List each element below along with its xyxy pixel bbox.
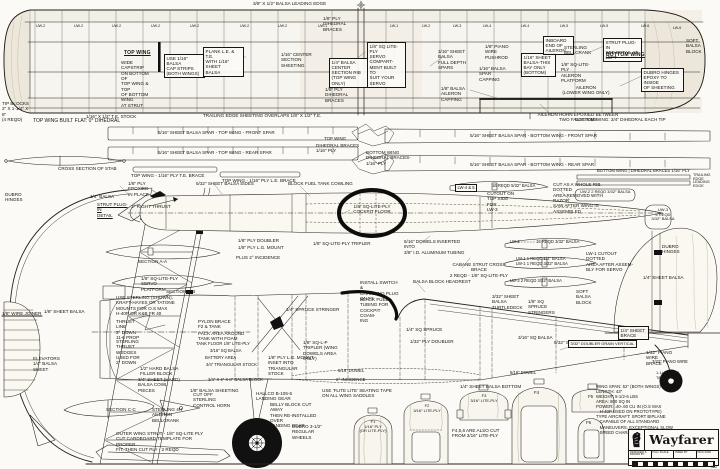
annotation-label: 1-1/4″ REQD TAIL WHEEL <box>656 371 684 380</box>
annotation-label: THRUST LINE 2° DOWN 11-6 PROP <box>116 319 146 340</box>
annotation-label: CUT AS A WHOLE RIB. DOTTED AREA REMOVED … <box>553 182 619 214</box>
annotation-label: SECTION C-C <box>106 407 136 412</box>
annotation-label: BLACK FUEL TUBING FOR COCKPIT COAM- ING <box>360 297 390 324</box>
annotation-label: 3/32″ PIANO WIRE <box>652 360 688 365</box>
annotation-label: PLANK L.E. & T.E. WITH 1/16″ SHEET BALSA <box>203 47 244 77</box>
annotation-label: 1/2″ HARD BALSA FILLER BLOCK <box>140 366 180 377</box>
annotation-label: SECTION A-A <box>138 259 167 264</box>
annotation-label: AILERON (LOWER WING ONLY) <box>556 85 616 96</box>
annotation-label: TOP WING BUILT FLAT: 0° DIHEDRAL <box>33 119 120 125</box>
annotation-label: CABANE STRUT CROSS BRACE 2 REQD - 1/8″ S… <box>446 262 512 278</box>
annotation-label: 3/4″ X 4″ X 8″ BALSA BLOCK <box>208 378 263 383</box>
annotation-label: UW-3 4 REQD 3/32″ BALSA <box>650 208 676 222</box>
annotation-label: 1/8″ PLY L.G. MOUNT <box>238 245 284 250</box>
annotation-label: WIDE CAPSTRIP ON BOTTOM OF TOP WING & TO… <box>121 60 155 108</box>
annotation-label: HALLCO B-105-5 LANDING GEAR <box>256 391 292 402</box>
annotation-label: UW-2 <box>36 24 45 28</box>
annotation-label: 5/16″ DOWELS INSERTED INTO 3/8″ I.D. ALU… <box>404 239 468 255</box>
annotation-label: 1/16″ SHEET BALSA-THIS BAY ONLY (BOTTOM) <box>521 53 556 77</box>
annotation-label: CUT OFF STERLING CONTROL HORN <box>193 392 233 408</box>
annotation-label: 16 REQD 5/32″ BALSA <box>492 184 535 189</box>
annotation-label: UW-2 <box>278 24 287 28</box>
annotation-label: 3/16″ SQ BALSA <box>518 335 553 340</box>
annotation-label: OUTER WING STRUT - 1/8″ SQ-LITE PLY CUT … <box>116 431 208 452</box>
title-block-cells: DESIGNED & DRAWN BYFULL SCALEINKED BYDIC… <box>629 451 718 459</box>
annotation-label: 1/8″ PLY DIHEDRAL BRACES <box>323 16 361 32</box>
annotation-label: UW-1 <box>318 24 327 28</box>
annotation-label: PYLON BRACE F2 & TANK <box>198 319 232 330</box>
annotation-label: 5/16″ SHEET BALSA SPAR - BOTTOM WING - R… <box>470 162 594 167</box>
annotation-label: 1/8″ PIANO WIRE PUSHROD <box>485 44 517 60</box>
annotation-label: LW-1 1 REQD 1/4″ BALSA LW-1 1 REQD 3/32″… <box>516 257 568 267</box>
annotation-label: 3/16″ SHEET BALSA FULL DEPTH SPARS <box>438 49 476 70</box>
annotation-label: 3° RIGHT THRUST <box>131 204 171 209</box>
annotation-label: BOTTOM WING: 3/4″ DIHEDRAL EACH TIP <box>575 117 666 122</box>
annotation-label: BLOCK FUEL TANK COWLING <box>288 181 353 186</box>
annotation-label: F3 3/16″ LITE-PLY <box>464 394 504 403</box>
annotation-label: LW-1 CUTOUT DOTTED AREA AFTER ASSEM- BLY… <box>586 251 636 272</box>
annotation-label: 3/4″ SHEET (HARD) BALSA COWL PIECES <box>138 377 184 393</box>
annotation-label: DUBRO HINGES <box>662 244 684 255</box>
annotation-label: DUBRO HINGES <box>5 192 27 203</box>
annotation-label: 1/4″ SHEET BRACE <box>618 326 649 340</box>
annotation-label: USE STERLING (SHOWN), KRAFT-HAYES OR TAT… <box>116 295 176 316</box>
annotation-label: UW-2 <box>151 24 160 28</box>
annotation-label: 5/16″ SHEET BALSA SPAR - TOP WING - REAR… <box>158 150 272 155</box>
title-block-cell: DICK KIDD <box>697 451 719 458</box>
annotation-label: ELEVATORS 1/4″ BALSA SHEET <box>33 356 61 372</box>
annotation-label: DUBRO HINGES EPOXY TO INSIDE OF SHEETING <box>641 68 684 92</box>
annotation-label: TIP BLOCKS 2″ X 1-1/4″ X 8″ (4 REQD) <box>2 101 32 122</box>
annotation-label: 3/32″ DOUBLER GRAIN VERTICAL <box>568 340 637 348</box>
annotation-label: 5/16″ DOWEL <box>510 371 536 376</box>
annotation-label: TANK FLOOR 1/8″ LITE-PLY <box>196 342 250 347</box>
annotation-label: LW-6 <box>673 26 681 30</box>
annotation-label: 1/4″ SHEET BALSA BOTTOM <box>460 384 521 389</box>
annotation-label: 5/32″ SHEET BALSA SIDES <box>196 181 254 186</box>
annotation-label: LW-3 2 REQD 3/32″ BALSA <box>510 279 562 284</box>
plan-number: 462 <box>711 465 717 469</box>
annotation-label: 1/8″ SQ-LITE-PLY TRIPLER <box>313 241 371 246</box>
annotation-label: F5 <box>588 394 593 399</box>
annotation-label: LW-4 <box>483 24 491 28</box>
annotation-label: TOP WING <box>124 51 151 57</box>
spec-block: WING SPAN: 52″ (BOTH WINGS)LENGTH: 43″WE… <box>596 384 718 435</box>
annotation-label: 1/8″ PLY DIHEDRAL BRACES <box>325 87 363 103</box>
annotation-label: BOTTOM WING <box>606 53 645 59</box>
annotation-label: UW-2 <box>190 24 199 28</box>
annotation-label: DIHEDRAL BRACES 1/16″ PLY <box>316 143 360 154</box>
annotation-label: LW-5 <box>600 24 608 28</box>
annotation-label: 5/16″ DOWEL <box>338 369 364 374</box>
annotation-label: SOFT BALSA BLOCK <box>686 38 710 54</box>
annotation-label: F6 <box>586 420 591 425</box>
annotation-label: 1/8″ SQ LITE-PLY SERVO COMPART- MENT BUI… <box>367 42 406 88</box>
annotation-label: LW-2 <box>510 240 520 245</box>
annotation-label: USE 1/16″ BALSA CAP STRIPS (BOTH WINGS) <box>164 54 205 78</box>
annotation-label: BOTTOM WING DIHEDRAL BRACES- 1/16″ PLY <box>366 150 418 166</box>
annotation-label: CROSS SECTION OF STAB <box>58 166 117 171</box>
annotation-label: 3/8″ X 1/2″ BALSA LEADING EDGE <box>253 1 326 6</box>
annotation-label: 1/8″ SQ-LITE-PLY COCKPIT FLOOR <box>352 204 392 215</box>
annotation-label: 16 REQD 3/32″ BALSA <box>536 240 579 245</box>
annotation-label: 1/8″ SQ SPRUCE STRINGERS <box>528 299 564 315</box>
annotation-label: LW-2 <box>422 24 430 28</box>
annotation-label: STERLING 4H AILERON BELLCRANK <box>152 407 196 423</box>
annotation-label: UW-2 <box>74 24 83 28</box>
annotation-label: UW-2 <box>240 24 249 28</box>
annotation-label: CUTOUT ON TOP SIDE FOR LW-3 <box>487 191 515 212</box>
annotation-label: TRAILING EDGE SHEETING OVERLAPS 1/8″ X 1… <box>203 113 321 118</box>
lion-crest-logo <box>629 430 645 450</box>
annotation-label: BATTERY AREA <box>205 356 236 361</box>
plan-sheet: TIP BLOCKS 2″ X 1-1/4″ X 8″ (4 REQD)TOP … <box>0 0 720 469</box>
annotation-label: 1/8″ PLY DOUBLER <box>238 238 279 243</box>
annotation-label: STERLING THRUST WEDGES USED FOR 2° DOWN <box>116 339 142 366</box>
annotation-label: USE 'FLITE LITE' SEATING TAPE ON ALL WIN… <box>322 388 394 399</box>
annotation-label: F1 1/16″ PLY (OR LITE-PLY) <box>356 420 390 434</box>
annotation-label: STRUT PLUG-IN DETAIL <box>97 202 131 218</box>
annotation-label: 5/16″ SHEET BALSA SPAR - BOTTOM WING - F… <box>470 133 597 138</box>
annotation-label: 1/16″ CENTER SECTION SHEETING <box>281 52 317 68</box>
annotation-label: DUBRO 3-1/2″ REGULAR WHEELS <box>292 424 328 440</box>
annotation-label: BALSA BLOCK HEADREST <box>413 279 471 284</box>
title-block-cell: DESIGNED & DRAWN BY <box>629 451 652 458</box>
annotation-label: BOTTOM WING | DIHEDRAL BRACES 1/16″ PLY <box>597 169 690 174</box>
annotation-label: LEADING EDGE <box>693 180 720 189</box>
annotation-label: 1/8″ SQ-LITE-PLY SERVO PLATFORM <box>141 276 181 292</box>
annotation-label: 1/8″ PLY L.G. MOUNT INSET INTO TRIANGULA… <box>268 355 318 376</box>
plan-title: Wayfarer <box>645 430 718 450</box>
annotation-label: LW-3 <box>453 24 461 28</box>
annotation-label: F4 <box>534 390 539 395</box>
title-block: Wayfarer DESIGNED & DRAWN BYFULL SCALEIN… <box>628 429 719 466</box>
annotation-label: 1/16″ BALSA SPAR CAPPING <box>479 66 511 82</box>
annotation-label: F4,5,6 ARE ALSO CUT FROM 3/16″ LITE-PLY <box>452 428 500 439</box>
annotation-label: 2° INCIDENCE <box>336 377 366 382</box>
annotation-label: SOFT BALSA BLOCK <box>576 289 604 305</box>
scale-bar <box>632 461 715 467</box>
annotation-label: 1/4″ SQ SPRUCE <box>406 327 442 332</box>
annotation-label: TOP WING - 1/16″ PLY T.E. BRACE <box>131 173 204 178</box>
annotation-label: LW-4 <box>521 24 529 28</box>
annotation-label: 1/8″ BALSA AILERON CAPPING <box>441 86 481 102</box>
annotation-label: 1/4″ SPRUCE STRINGER <box>286 307 339 312</box>
annotation-label: 1/8″ WIRE JOINER <box>2 311 41 316</box>
annotation-label: UW-2 <box>112 24 121 28</box>
annotation-label: 1/4″ BALSA <box>90 194 114 199</box>
annotation-label: PLUS 2° INCIDENCE <box>236 255 280 260</box>
annotation-label: 1/8″ SQ-LITE-PLY AILERON PLATFORM <box>561 62 597 83</box>
annotation-label: 3/16″ SQ BALSA <box>210 349 242 354</box>
annotation-label: 5/16″ SHEET BALSA SPAR - TOP WING - FRON… <box>158 130 275 135</box>
annotation-label: TOP WING <box>324 136 346 141</box>
annotation-label: LW-4 & 5 <box>455 184 477 192</box>
title-block-cell: INKED BY <box>674 451 697 458</box>
annotation-label: 1/8″ SHEET BALSA <box>44 309 85 314</box>
annotation-label: 1/32″ PLY DOUBLER <box>410 339 454 344</box>
annotation-label: 3/4″ TRIANGULAR STOCK <box>206 363 257 368</box>
annotation-label: LW-5 <box>560 24 568 28</box>
annotation-label: F2 3/16″ LITE-PLY <box>408 404 446 413</box>
annotation-label: UW-2 2 REQD 3/32″ BALSA <box>580 190 630 195</box>
annotation-label: LW-1 <box>390 24 398 28</box>
annotation-label: STERLING BELLCRANK <box>564 45 592 56</box>
annotation-label: LW-6 <box>641 24 649 28</box>
annotation-label: 1/4″ SHEET BALSA <box>643 275 684 280</box>
title-block-cell: FULL SCALE <box>652 451 675 458</box>
annotation-label: 1/4″ BALSA CENTER SECTION RIB (TOP WING … <box>329 58 372 88</box>
annotation-label: 1/8″ PLY EPOXIED IN PLACE <box>128 181 164 197</box>
